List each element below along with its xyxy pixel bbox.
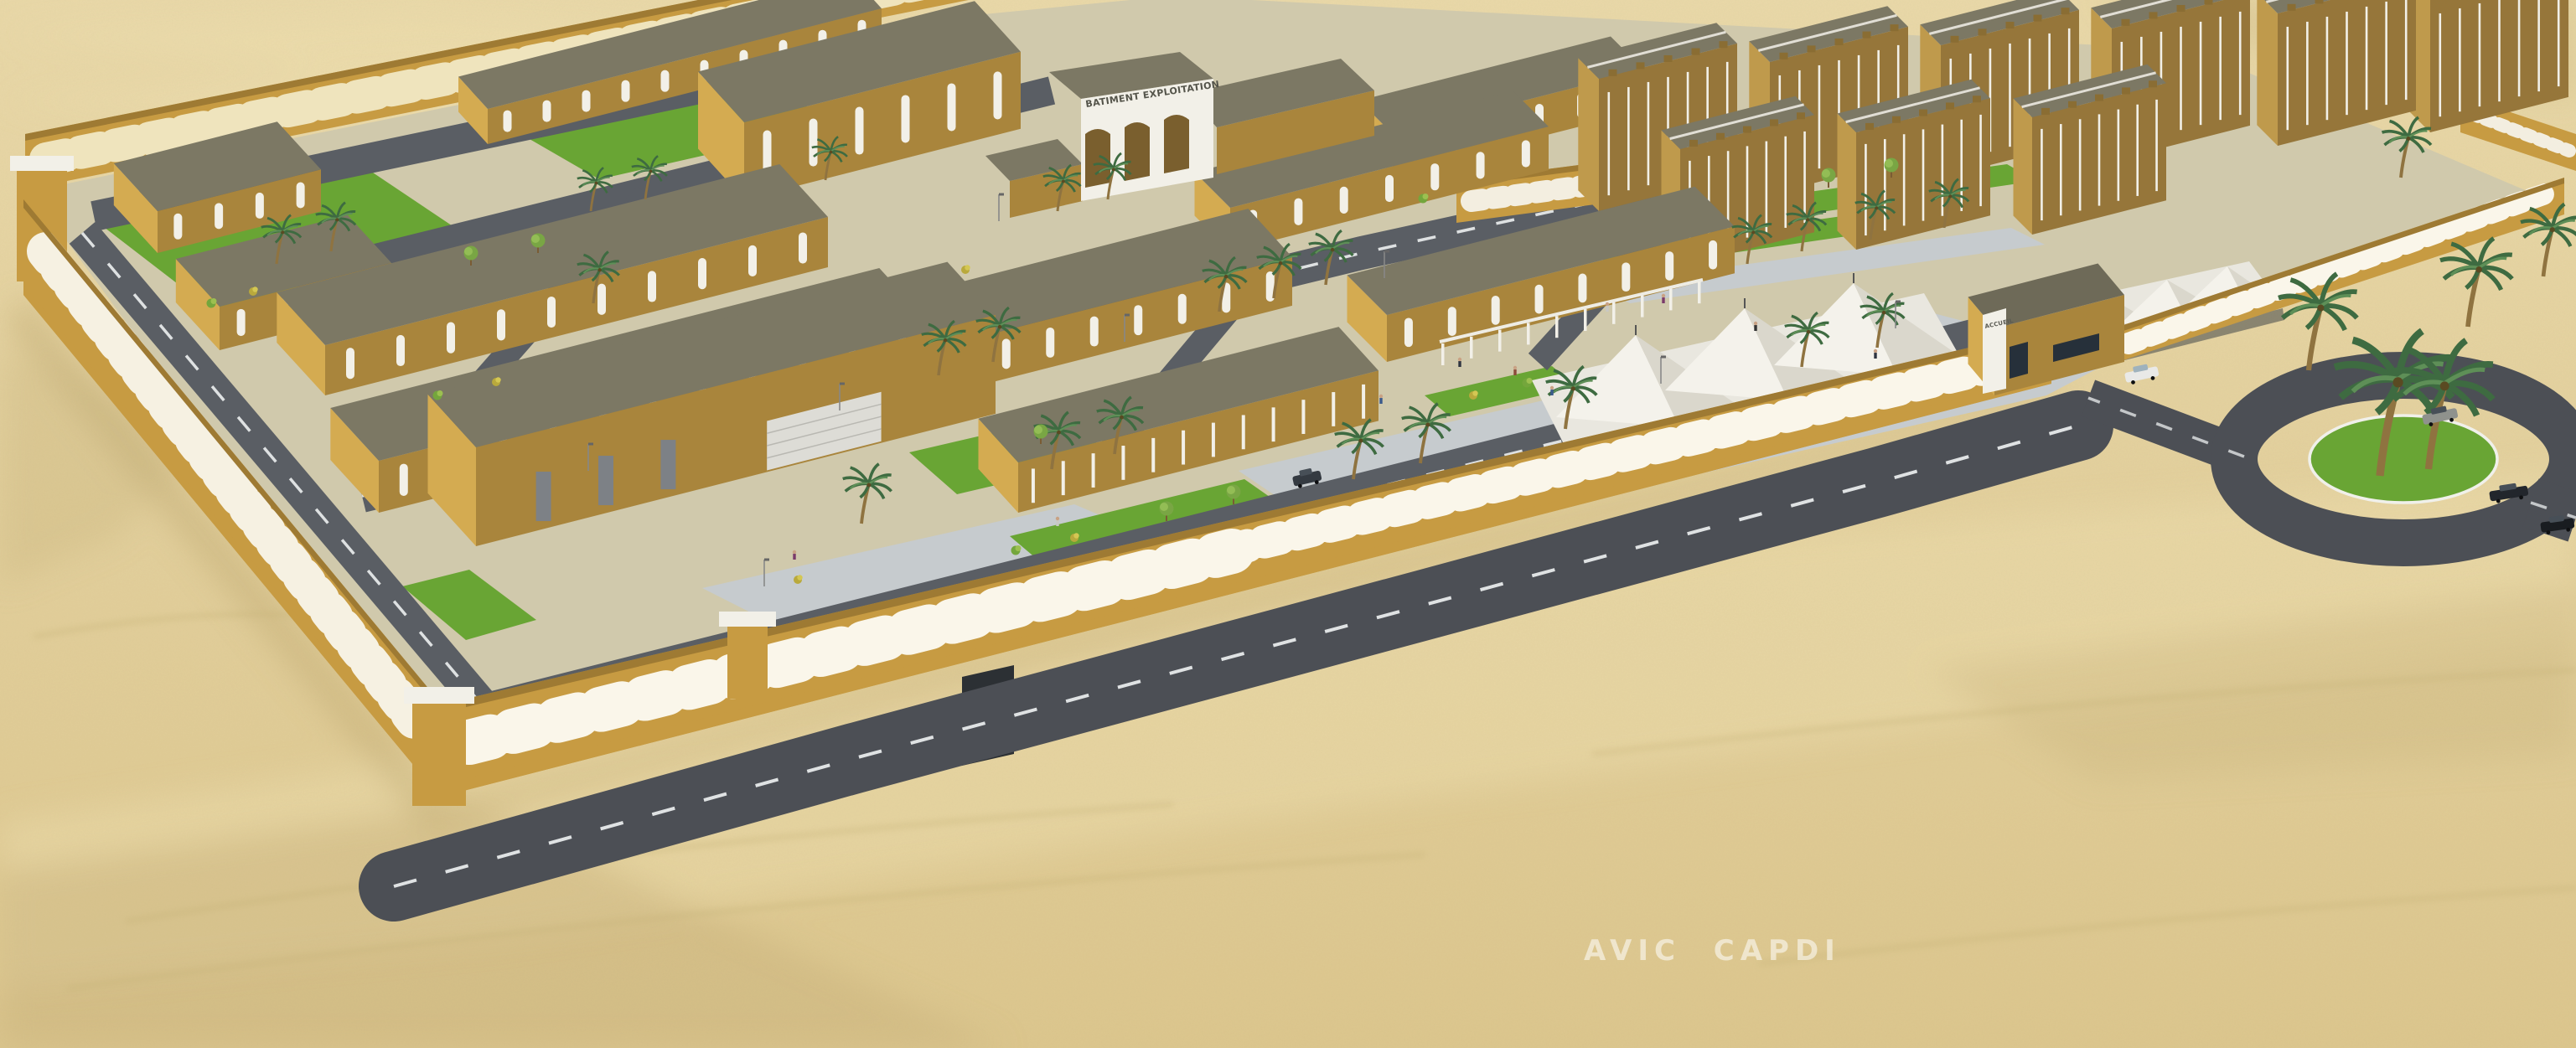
arch-trim: [661, 70, 670, 92]
corner-tower-south: [404, 687, 474, 806]
arch-trim: [1134, 305, 1142, 335]
arch-trim: [1477, 152, 1485, 178]
arch-trim: [1430, 163, 1439, 190]
arch-trim: [948, 83, 956, 131]
arch-trim: [396, 335, 405, 366]
parapet-crenel: [2095, 95, 2103, 101]
arch-trim: [698, 258, 706, 289]
person: [793, 550, 796, 560]
arch-trim: [994, 71, 1002, 119]
parapet-crenel: [1609, 70, 1617, 76]
compound-rendering: BATIMENT EXPLOITATION ACCUEIL: [0, 0, 2576, 1048]
arch-trim: [215, 203, 223, 229]
person: [1662, 294, 1665, 303]
arch-trim: [1046, 328, 1054, 358]
parapet-crenel: [2149, 80, 2157, 87]
parapet-crenel: [2041, 108, 2050, 115]
parapet-crenel: [2149, 12, 2158, 18]
service-door: [536, 472, 551, 521]
arch-trim: [543, 101, 551, 122]
person: [1550, 386, 1554, 395]
parapet-crenel: [2061, 8, 2070, 14]
arch-trim: [1522, 140, 1530, 167]
person: [1513, 366, 1517, 375]
parapet-crenel: [1946, 102, 1954, 109]
person: [1458, 358, 1461, 367]
arch-trim: [547, 297, 556, 328]
parapet-crenel: [2177, 5, 2185, 12]
person: [1754, 322, 1757, 331]
parapet-crenel: [1951, 36, 1959, 43]
arch-trim: [297, 182, 305, 208]
parapet-crenel: [1979, 28, 1987, 35]
arch-trim: [902, 95, 910, 142]
parapet-crenel: [1797, 112, 1805, 119]
parapet-crenel: [1973, 96, 1981, 102]
service-door: [598, 456, 613, 505]
parapet-crenel: [1919, 110, 1927, 116]
parapet-crenel: [2315, 0, 2324, 3]
arch-trim: [447, 323, 455, 354]
arch-trim: [1492, 296, 1500, 325]
person: [1379, 395, 1383, 404]
parapet-crenel: [2068, 101, 2077, 108]
parapet-crenel: [1770, 119, 1778, 126]
parapet-crenel: [1716, 133, 1725, 140]
arch-trim: [799, 232, 807, 263]
parapet-crenel: [1720, 41, 1728, 48]
arch-trim: [1578, 274, 1586, 303]
parapet-crenel: [1891, 24, 1899, 31]
arch-trim: [1294, 199, 1302, 225]
arch-trim: [497, 309, 505, 340]
arch-trim: [1404, 317, 1413, 347]
rendering-canvas: BATIMENT EXPLOITATION ACCUEIL: [0, 0, 2576, 1048]
arch-trim: [748, 245, 757, 276]
arch-trim: [400, 464, 408, 496]
parapet-crenel: [1808, 45, 1816, 52]
arch-trim: [582, 90, 591, 112]
parapet-crenel: [1865, 123, 1874, 130]
arch-trim: [346, 348, 354, 379]
parapet-crenel: [1780, 53, 1788, 59]
parapet-crenel: [1743, 126, 1751, 133]
arch-trim: [1665, 251, 1673, 281]
person: [1874, 349, 1877, 359]
arch-trim: [810, 119, 818, 167]
roundabout-island: [2310, 416, 2497, 503]
parapet-crenel: [1863, 32, 1871, 39]
parapet-crenel: [2034, 15, 2042, 22]
parapet-crenel: [2122, 87, 2130, 94]
arch-trim: [237, 309, 246, 336]
arch-trim: [1448, 307, 1456, 336]
arch-trim: [1535, 285, 1544, 314]
watermark-text: AVIC CAPDI: [1584, 934, 1841, 968]
parapet-crenel: [2006, 22, 2015, 28]
parapet-crenel: [2288, 4, 2296, 11]
arch-trim: [504, 111, 512, 132]
arch-trim: [1002, 338, 1011, 369]
parapet-crenel: [2205, 0, 2213, 5]
arch-trim: [1385, 175, 1394, 202]
parapet-crenel: [1664, 55, 1673, 62]
arch-trim: [256, 193, 264, 219]
parapet-crenel: [2122, 19, 2130, 26]
arch-trim: [173, 214, 182, 240]
arch-trim: [1709, 240, 1717, 270]
arch-trim: [648, 271, 656, 302]
gatehouse-door: [2010, 342, 2028, 379]
arch-trim: [597, 284, 606, 315]
parapet-crenel: [1892, 116, 1901, 123]
arch-trim: [1178, 294, 1187, 324]
parapet-crenel: [1689, 140, 1698, 147]
parapet-crenel: [1637, 62, 1645, 69]
parapet-crenel: [1692, 49, 1700, 55]
arch-trim: [1622, 262, 1630, 292]
person: [1606, 302, 1609, 312]
parapet-crenel: [1835, 39, 1844, 45]
arch-trim: [622, 80, 630, 102]
service-door: [660, 440, 675, 489]
arch-trim: [1090, 317, 1099, 347]
person: [1056, 517, 1059, 526]
arch-trim: [856, 106, 864, 154]
arch-trim: [1340, 187, 1348, 214]
